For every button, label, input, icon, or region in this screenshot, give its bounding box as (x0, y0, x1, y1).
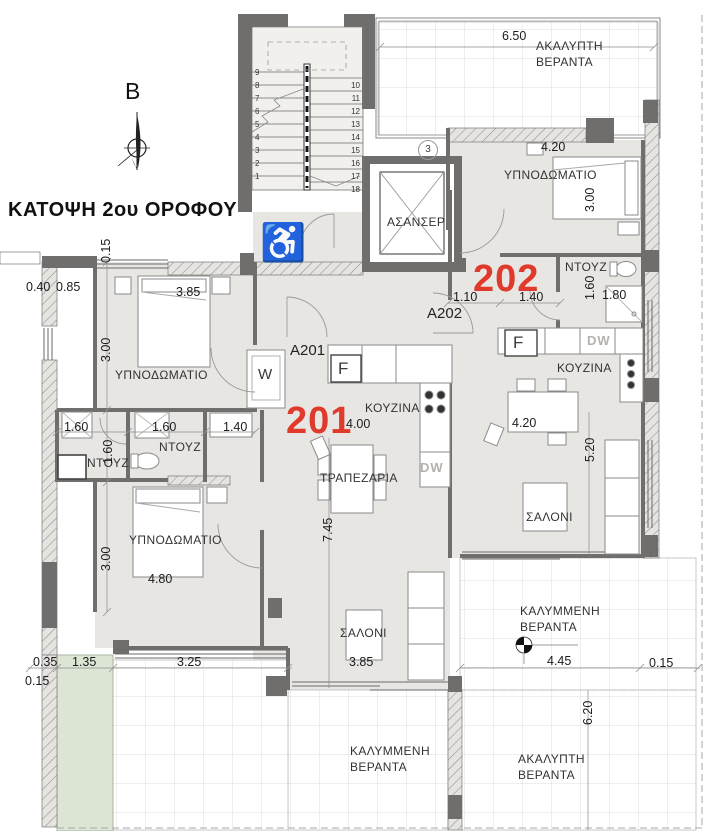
stair-step-number: 4 (255, 133, 269, 142)
north-arrow (118, 112, 150, 170)
stair-step-number: 9 (255, 68, 269, 77)
stair-step-number: 5 (255, 120, 269, 129)
room-label-bedroom-201-front: ΥΠΝΟΔΩΜΑΤΙΟ (115, 368, 208, 384)
stair-step-number: 7 (255, 94, 269, 103)
stair-step-number: 10 (346, 81, 360, 90)
dim-shower-a-width: 1.60 (64, 420, 88, 434)
washer-label: W (258, 366, 272, 383)
dim-east-offset: 0.15 (649, 656, 673, 670)
stair-step-number: 14 (346, 133, 360, 142)
grid-bubble-3: 3 (418, 140, 438, 160)
dim-west-offset-a: 0.40 (26, 280, 50, 294)
planter (57, 655, 113, 831)
dim-living201-width: 3.85 (349, 655, 373, 669)
dim-living202-depth: 5.20 (583, 438, 597, 462)
apartment-201-number: 201 (286, 400, 352, 443)
veranda-label-line: ΒΕΡΑΝΤΑ (350, 759, 430, 775)
veranda-label-covered-right: ΚΑΛΥΜΜΕΝΗ ΒΕΡΑΝΤΑ (520, 603, 600, 635)
apartment-202-code: A202 (427, 305, 462, 322)
room-label-bedroom-202: ΥΠΝΟΔΩΜΑΤΙΟ (504, 168, 597, 184)
stair-step-number: 16 (346, 159, 360, 168)
veranda-label-uncovered-bottom: ΑΚΑΛΥΠΤΗ ΒΕΡΑΝΤΑ (518, 751, 585, 783)
dim-veranda-right-length: 6.20 (581, 701, 595, 725)
dim-bedroom202-depth: 3.00 (583, 188, 597, 212)
wheelchair-accessible-icon: ♿ (260, 222, 306, 265)
dim-bedroom201b-depth: 3.00 (99, 547, 113, 571)
veranda-label-covered-bottom: ΚΑΛΥΜΜΕΝΗ ΒΕΡΑΝΤΑ (350, 743, 430, 775)
dim-sw-offset-b: 0.15 (25, 674, 49, 688)
room-label-dining-201: ΤΡΑΠΕΖΑΡΙΑ (320, 471, 398, 487)
apartment-202-number: 202 (473, 258, 539, 301)
dim-shower-depth: 1.60 (101, 440, 115, 464)
fridge-201-label: F (338, 359, 348, 379)
room-label-bedroom-201-back: ΥΠΝΟΔΩΜΑΤΙΟ (129, 533, 222, 549)
veranda-label-line: ΚΑΛΥΜΜΕΝΗ (350, 743, 430, 759)
stair-step-number: 11 (346, 94, 360, 103)
veranda-label-line: ΒΕΡΑΝΤΑ (520, 619, 600, 635)
elevator-shaft (366, 160, 458, 266)
dim-north-wall: 0.15 (99, 239, 113, 263)
stair-step-number: 6 (255, 107, 269, 116)
dim-shower-b-width: 1.60 (152, 420, 176, 434)
stair-step-number: 12 (346, 107, 360, 116)
stair-step-number: 13 (346, 120, 360, 129)
dim-dining202-width: 4.20 (512, 416, 536, 430)
fridge-202-label: F (513, 333, 523, 353)
compass-north-label: B (125, 78, 140, 105)
veranda-label-line: ΑΚΑΛΥΠΤΗ (518, 751, 585, 767)
veranda-label-uncovered-top: ΑΚΑΛΥΠΤΗ ΒΕΡΑΝΤΑ (536, 38, 603, 70)
veranda-label-line: ΚΑΛΥΜΜΕΝΗ (520, 603, 600, 619)
floor-plan: ΚΑΤΟΨΗ 2ου ΟΡΟΦΟΥ B 201 202 A201 A202 ΑΣ… (0, 0, 716, 831)
dim-sw-offset-a: 0.35 (33, 655, 57, 669)
dim-west-offset-b: 0.85 (56, 280, 80, 294)
veranda-label-line: ΒΕΡΑΝΤΑ (518, 767, 585, 783)
stair-step-number: 17 (346, 172, 360, 181)
room-label-kitchen-202: ΚΟΥΖΙΝΑ (557, 361, 612, 377)
dim-bedroom202-width: 4.20 (541, 140, 565, 154)
dim-sw-width: 3.25 (177, 655, 201, 669)
apartment-201-code: A201 (290, 342, 325, 359)
dim-sw-planter: 1.35 (72, 655, 96, 669)
dim-living201-length: 7.45 (321, 518, 335, 542)
dim-shower202-width: 1.80 (602, 288, 626, 302)
veranda-label-line: ΒΕΡΑΝΤΑ (536, 54, 603, 70)
stair-step-number: 3 (255, 146, 269, 155)
dim-bedroom201f-depth: 3.00 (99, 338, 113, 362)
stair-step-number: 8 (255, 81, 269, 90)
dishwasher-202-label: DW (587, 333, 611, 348)
room-label-shower-202: ΝΤΟΥΖ (565, 260, 607, 276)
room-label-kitchen-201: ΚΟΥΖΙΝΑ (365, 401, 420, 417)
room-label-elevator: ΑΣΑΝΣΕΡ (387, 215, 445, 231)
dim-bedroom201f-width: 3.85 (176, 285, 200, 299)
dim-bedroom201b-width: 4.80 (148, 572, 172, 586)
room-label-living-202: ΣΑΛΟΝΙ (526, 510, 573, 526)
dim-veranda-right-width: 4.45 (547, 654, 571, 668)
page-title: ΚΑΤΟΨΗ 2ου ΟΡΟΦΟΥ (8, 199, 237, 222)
dishwasher-201-label: DW (420, 460, 444, 475)
room-label-living-201: ΣΑΛΟΝΙ (340, 626, 387, 642)
stair-step-number: 2 (255, 159, 269, 168)
stair-step-number: 18 (346, 185, 360, 194)
veranda-label-line: ΑΚΑΛΥΠΤΗ (536, 38, 603, 54)
stair-step-number: 1 (255, 172, 269, 181)
room-label-shower-201-b: ΝΤΟΥΖ (159, 440, 201, 456)
dim-wc-width: 1.40 (223, 420, 247, 434)
dim-veranda-top: 6.50 (502, 29, 526, 43)
dim-shower202-depth: 1.60 (583, 276, 597, 300)
stair-step-number: 15 (346, 146, 360, 155)
